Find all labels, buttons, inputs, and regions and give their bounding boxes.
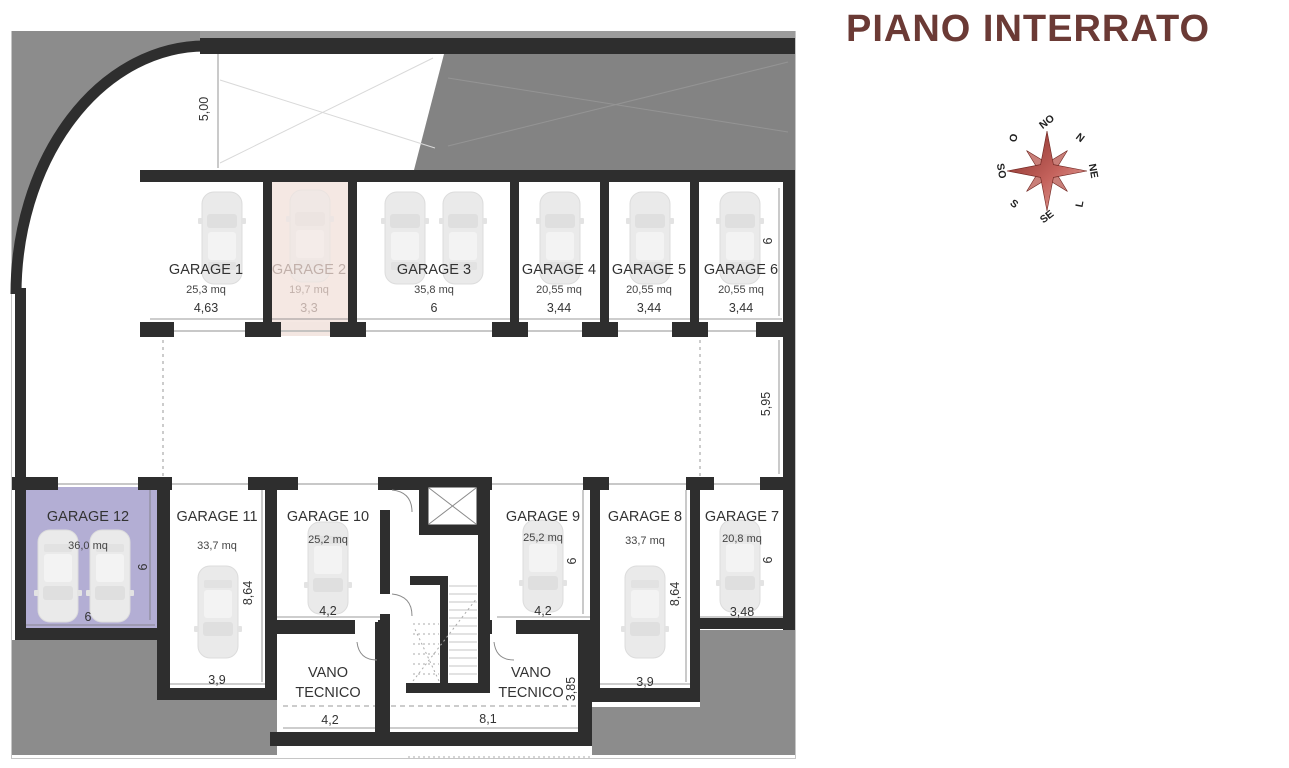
car-garage-8 <box>621 566 669 658</box>
garage-9-width: 4,2 <box>534 604 551 618</box>
garage-1-area: 25,3 mq <box>186 284 226 296</box>
floor-plan-page: PIANO INTERRATO <box>0 0 1289 768</box>
garage-6-label: GARAGE 6 <box>704 262 778 278</box>
garage-2-label: GARAGE 2 <box>272 262 346 278</box>
ramp-guide-lines <box>220 58 435 163</box>
elevator-shaft <box>427 486 478 526</box>
ramp-width-dim: 5,00 <box>197 97 211 121</box>
compass-label-s: S <box>1008 197 1021 211</box>
garage-2-width: 3,3 <box>300 301 317 315</box>
garage-8-area: 33,7 mq <box>625 535 665 547</box>
compass-label-no: NO <box>1037 112 1057 131</box>
garage-12-width: 6 <box>85 610 92 624</box>
garage-2-area: 19,7 mq <box>289 284 329 296</box>
compass-label-ne: NE <box>1086 163 1100 179</box>
compass-label-n: N <box>1073 131 1086 145</box>
vano-tecnico-right-line1: VANO <box>511 665 551 681</box>
vano-tecnico-right-width: 8,1 <box>479 712 496 726</box>
compass-label-l: L <box>1074 199 1087 208</box>
garage-4-label: GARAGE 4 <box>522 262 596 278</box>
compass-label-se: SE <box>1038 208 1056 226</box>
vano-tecnico-right-depth: 3,85 <box>564 677 578 701</box>
garage-2-door-strip <box>281 322 330 336</box>
garage-7-area: 20,8 mq <box>722 533 762 545</box>
garage-11-width: 3,9 <box>208 673 225 687</box>
garage-4-width: 3,44 <box>547 301 571 315</box>
garage-9-area: 25,2 mq <box>523 532 563 544</box>
garage-8-width: 3,9 <box>636 675 653 689</box>
compass-label-o: O <box>1007 133 1020 143</box>
garage-1-label: GARAGE 1 <box>169 262 243 278</box>
garage-7-depth: 6 <box>761 556 775 563</box>
vano-tecnico-right-line2: TECNICO <box>498 685 563 701</box>
driveway-depth-dim: 5,95 <box>759 392 773 416</box>
floor-plan-drawing: GARAGE 1 25,3 mq 4,63 GARAGE 2 19,7 mq 3… <box>0 0 1289 768</box>
garage-6-area: 20,55 mq <box>718 284 764 296</box>
garage-8-label: GARAGE 8 <box>608 509 682 525</box>
garage-9-depth: 6 <box>565 557 579 564</box>
garage-10-area: 25,2 mq <box>308 534 348 546</box>
garage-11-depth: 8,64 <box>241 581 255 605</box>
garage-5-width: 3,44 <box>637 301 661 315</box>
garage-1-width: 4,63 <box>194 301 218 315</box>
car-garage-11 <box>194 566 242 658</box>
garage-4-area: 20,55 mq <box>536 284 582 296</box>
garage-6-width: 3,44 <box>729 301 753 315</box>
compass-label-so: SO <box>994 162 1008 179</box>
garage-11-area: 33,7 mq <box>197 540 237 552</box>
ramp-area <box>408 54 795 170</box>
garage-3-area: 35,8 mq <box>414 284 454 296</box>
compass-rose: NO N NE L SE S SO O <box>994 112 1100 226</box>
garage-door-lines <box>20 331 783 484</box>
garage-12-label: GARAGE 12 <box>47 509 129 525</box>
site-surroundings <box>12 31 796 759</box>
garage-10-width: 4,2 <box>319 604 336 618</box>
garage-6-depth: 6 <box>761 237 775 244</box>
garage-5-area: 20,55 mq <box>626 284 672 296</box>
garage-3-label: GARAGE 3 <box>397 262 471 278</box>
garage-3-width: 6 <box>431 301 438 315</box>
garage-8-depth: 8,64 <box>668 582 682 606</box>
garage-7-label: GARAGE 7 <box>705 509 779 525</box>
garage-11-label: GARAGE 11 <box>176 509 257 525</box>
garage-7-width: 3,48 <box>730 605 754 619</box>
garage-12-depth: 6 <box>136 563 150 570</box>
vano-tecnico-left-line1: VANO <box>308 665 348 681</box>
vano-tecnico-left-line2: TECNICO <box>295 685 360 701</box>
garage-12-area: 36,0 mq <box>68 540 108 552</box>
garage-5-label: GARAGE 5 <box>612 262 686 278</box>
garage-10-label: GARAGE 10 <box>287 509 369 525</box>
garage-9-label: GARAGE 9 <box>506 509 580 525</box>
vano-tecnico-left-width: 4,2 <box>321 713 338 727</box>
